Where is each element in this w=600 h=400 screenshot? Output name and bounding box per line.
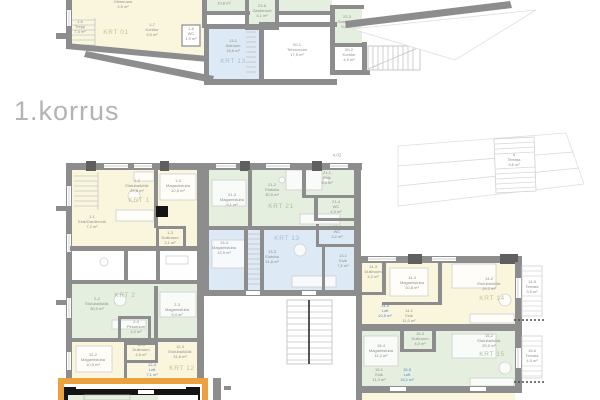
lower-exterior-stair <box>287 300 332 364</box>
upper-plan <box>56 0 536 85</box>
lower-middle-block <box>204 161 362 364</box>
upper-wc-room <box>182 25 200 46</box>
roof-terrace-hatch <box>494 137 536 193</box>
lower-right-block <box>356 254 544 400</box>
apartment-highlighted[interactable] <box>61 381 205 400</box>
wall-stub-right-of-highlight <box>213 378 221 400</box>
floorplan-drawing <box>0 0 600 400</box>
apartment-cut-bottom[interactable] <box>362 393 515 400</box>
terrace-krt-15 <box>522 336 542 378</box>
terrace-krt-14 <box>522 266 542 316</box>
floorplan-canvas: 1.korrus 1-08Olmeruum2,5 m²1-6Trepp7,4 m… <box>0 0 600 400</box>
roof-plane <box>398 133 584 206</box>
wall-tick <box>224 386 231 390</box>
floor-title: 1.korrus <box>14 96 120 127</box>
upper-exterior-stair <box>368 46 420 70</box>
